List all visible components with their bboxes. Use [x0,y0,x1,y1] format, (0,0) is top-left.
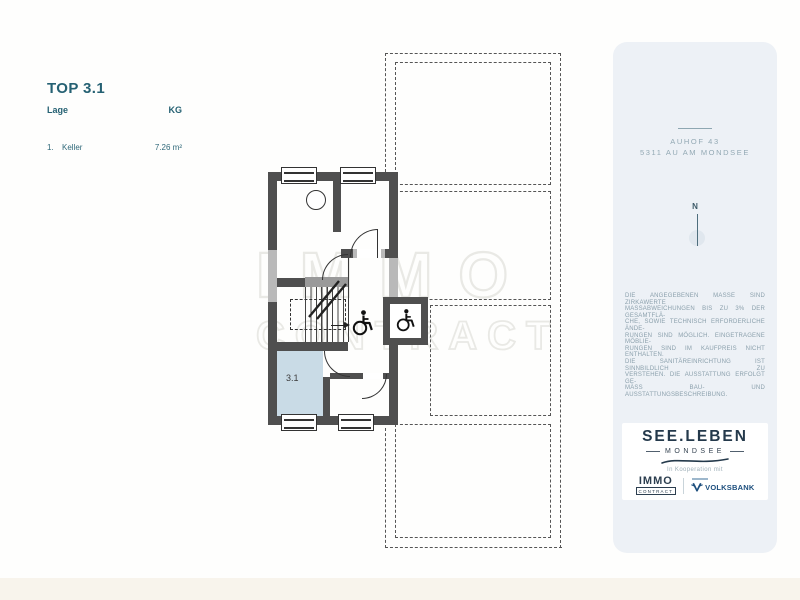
door-arc [324,351,350,377]
disclaimer-line: DIE ANGEGEBENEN MASSE SIND ZIRKAWERTE [625,293,765,306]
logo-card: SEE.LEBEN MONDSEE In Kooperation mit IMM… [622,423,768,500]
volksbank-tagline-bar [692,478,708,480]
wall [323,377,330,416]
wall [333,181,341,232]
brand-seeleben: SEE.LEBEN [622,428,768,446]
neighbour-room [430,305,551,416]
north-label: N [613,202,777,211]
disclaimer-line: DIE SANITÄREINRICHTUNG IST SINNBILDLICH … [625,359,765,372]
row-room-name: Keller [62,143,82,152]
brand-mondsee: MONDSEE [665,448,725,455]
drain-circle-symbol [306,190,326,210]
disclaimer-line: RUNGEN SIND MÖGLICH. EINGETRAGENE MÖBLIE… [625,333,765,346]
logo-separator [683,478,684,494]
disclaimer-line: MÄSS BAU- UND AUSSTATTUNGSBESCHREIBUNG. [625,385,765,398]
room-3-1-label: 3.1 [286,373,299,383]
light-wall-segment [389,255,398,302]
disclaimer-line: CHE, SOWIE TECHNISCH ERFORDERLICHE ÄNDE- [625,319,765,332]
corridor-edge-line [348,258,349,342]
wave-icon [660,456,730,466]
outline-edge [385,53,561,54]
row-area: 7.26 m² [132,143,182,152]
outline-edge [385,428,386,548]
neighbour-room [395,62,551,185]
window-symbol [340,167,376,184]
immo-contract-logo: IMMO CONTRACT [636,476,677,495]
volksbank-logo: VOLKSBANK [691,478,754,493]
room-3-1 [277,351,323,416]
immo-logo-text: IMMO [639,476,673,486]
neighbour-room [395,191,551,300]
cooperation-text: In Kooperation mit [622,467,768,473]
address-line2: 5311 AU AM MONDSEE [613,148,777,157]
window-symbol [281,414,317,431]
outline-edge [385,547,562,548]
door-arc [362,374,387,399]
elevator-wheelchair-icon [395,308,415,332]
outline-edge [560,53,561,548]
row-index: 1. [47,143,54,152]
sub-line-right [730,451,744,452]
window-symbol [338,414,374,431]
neighbour-room [395,424,551,538]
unit-title: TOP 3.1 [47,80,197,97]
volksbank-v-icon [691,481,703,493]
disclaimer-line: RUNGEN SIND IM KAUFPREIS NICHT ENTHALTEN… [625,346,765,359]
sub-line-left [646,451,660,452]
partner-logos: IMMO CONTRACT VOLKSBANK [622,476,768,495]
location-header: Lage [47,105,68,115]
north-arrow-icon [697,214,698,246]
volksbank-logo-text: VOLKSBANK [705,483,754,492]
divider-line [678,128,712,129]
disclaimer: DIE ANGEGEBENEN MASSE SIND ZIRKAWERTE MA… [625,293,765,399]
wheelchair-icon [351,309,373,336]
stairs-arrow-head [344,322,350,328]
light-wall-segment [268,250,277,302]
level-header: KG [142,105,182,115]
unit-info-block: TOP 3.1 Lage KG 1. Keller 7.26 m² [47,80,197,155]
disclaimer-line: VERSTEHEN. DIE AUSSTATTUNG ERFOLGT GE- [625,372,765,385]
disclaimer-line: MASSABWEICHUNGEN BIS ZU 3% DER GESAMTFLÄ… [625,306,765,319]
wall [277,342,348,351]
door-jamb [381,249,385,258]
stairs-arrow [331,325,345,326]
door-arc [350,229,378,257]
wall [268,181,277,425]
door-leaf [377,229,378,258]
side-panel: AUHOF 43 5311 AU AM MONDSEE N DIE ANGEGE… [613,42,777,553]
contract-logo-text: CONTRACT [636,487,677,495]
footer-band [0,578,800,600]
address-line1: AUHOF 43 [613,137,777,146]
window-symbol [281,167,317,184]
outline-edge [385,53,386,172]
elevator [383,297,428,345]
